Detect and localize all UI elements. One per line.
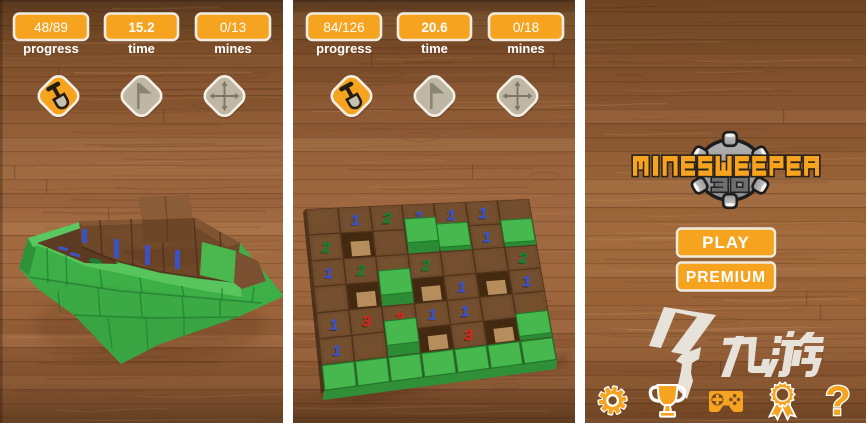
svg-text:20.6: 20.6 — [421, 20, 448, 35]
svg-text:mines: mines — [507, 41, 545, 56]
svg-text:time: time — [128, 41, 155, 56]
svg-text:0/18: 0/18 — [513, 20, 539, 35]
svg-text:84/126: 84/126 — [323, 20, 364, 35]
svg-text:mines: mines — [214, 41, 252, 56]
svg-text:PREMIUM: PREMIUM — [686, 269, 766, 286]
svg-text:48/89: 48/89 — [34, 20, 68, 35]
svg-text:0/13: 0/13 — [220, 20, 246, 35]
svg-text:PLAY: PLAY — [702, 233, 750, 252]
svg-text:15.2: 15.2 — [128, 20, 154, 35]
svg-text:progress: progress — [23, 41, 79, 56]
svg-text:progress: progress — [316, 41, 372, 56]
svg-text:time: time — [421, 41, 448, 56]
svg-text:?: ? — [825, 377, 851, 423]
